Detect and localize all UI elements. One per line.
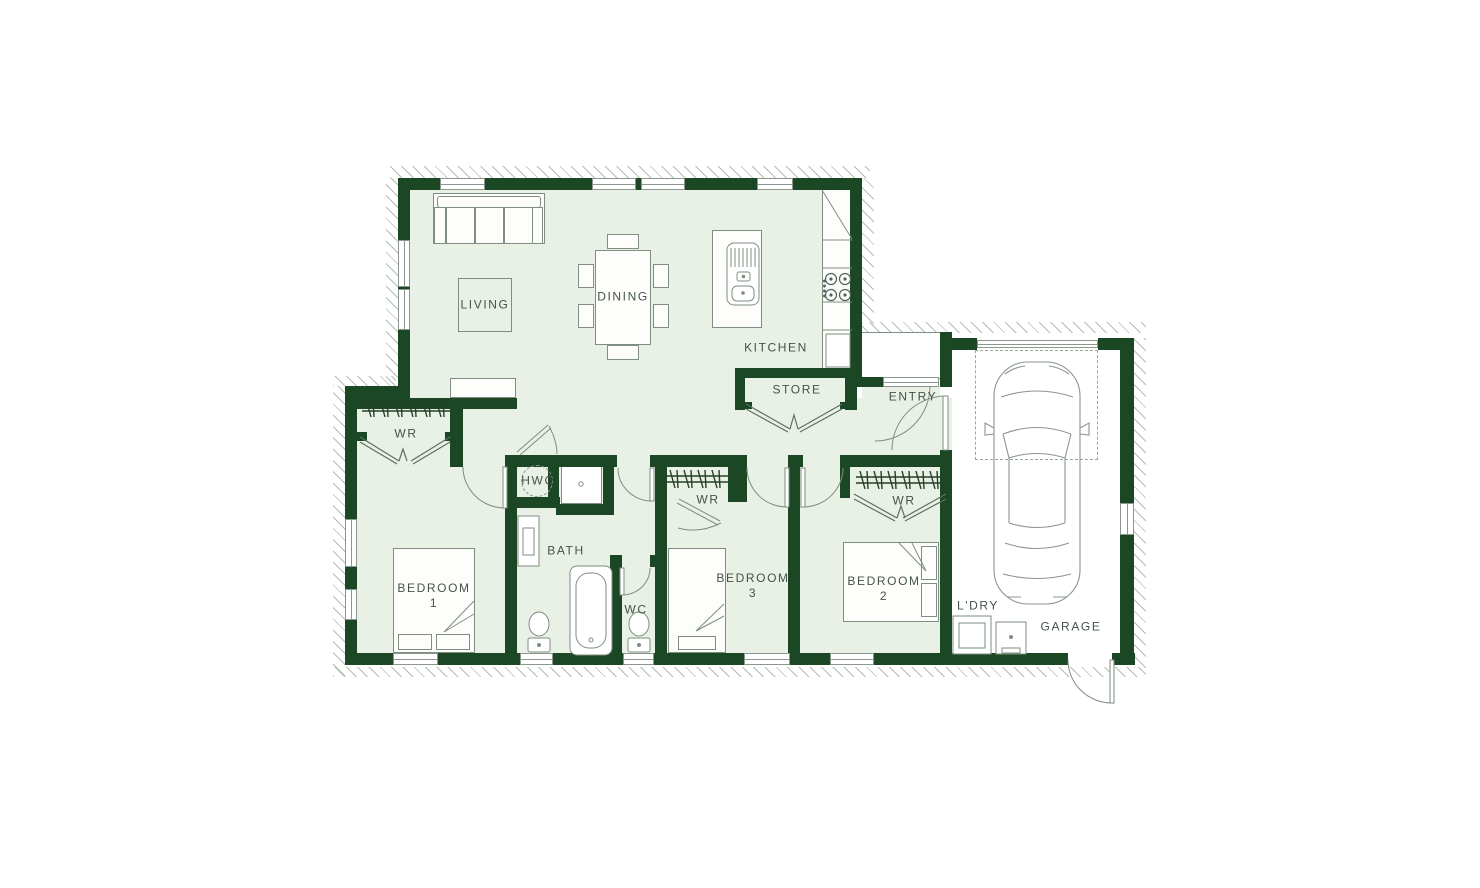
bedroom3-name: BEDROOM xyxy=(716,571,789,586)
exterior-hatch xyxy=(1134,338,1146,668)
wall-segment xyxy=(345,653,1068,665)
wall-segment xyxy=(1120,535,1134,665)
shower-tray xyxy=(561,466,602,504)
dining-chair xyxy=(607,345,639,360)
window xyxy=(641,178,685,190)
room-label-bedroom3: BEDROOM 3 xyxy=(716,571,789,601)
window xyxy=(345,589,357,620)
wall-segment xyxy=(357,432,367,441)
window xyxy=(398,240,410,287)
washing-machine xyxy=(996,622,1026,654)
wall-segment xyxy=(655,455,667,665)
wall-segment xyxy=(735,368,862,378)
wall-segment xyxy=(850,178,862,378)
bedroom2-name: BEDROOM xyxy=(847,574,920,589)
room-label-store: STORE xyxy=(772,383,821,398)
exterior-hatch xyxy=(386,178,398,400)
wall-segment xyxy=(940,450,952,665)
kitchen-counter xyxy=(822,188,852,370)
wall-segment xyxy=(505,467,517,653)
room-label-living: LIVING xyxy=(461,298,510,313)
room-label-wr2: WR xyxy=(892,494,915,509)
laundry-tub xyxy=(953,616,991,654)
room-label-wr1: WR xyxy=(394,427,417,442)
room-label-entry: ENTRY xyxy=(889,390,937,405)
room-label-garage: GARAGE xyxy=(1041,620,1102,635)
floor-plan: LIVING DINING KITCHEN STORE ENTRY WR HWC… xyxy=(0,0,1480,888)
window xyxy=(592,178,636,190)
porch xyxy=(860,332,942,379)
exterior-hatch xyxy=(333,386,345,676)
sofa-seat-cushion xyxy=(475,207,504,244)
pillow xyxy=(678,636,716,650)
bedroom1-number: 1 xyxy=(397,596,470,611)
exterior-hatch xyxy=(862,178,874,324)
window xyxy=(520,653,553,665)
window xyxy=(440,178,485,190)
garage-door-projection xyxy=(975,350,1098,460)
dining-chair xyxy=(578,304,594,328)
room-label-dining: DINING xyxy=(597,290,649,305)
dining-chair xyxy=(578,264,594,288)
pillow xyxy=(398,634,432,650)
wall-segment xyxy=(744,402,752,409)
window xyxy=(744,653,790,665)
pillow xyxy=(436,634,470,650)
room-label-kitchen: KITCHEN xyxy=(744,341,808,356)
room-label-bedroom1: BEDROOM 1 xyxy=(397,581,470,611)
sofa-seat-cushion xyxy=(504,207,533,244)
wall-segment xyxy=(445,432,455,441)
wall-segment xyxy=(840,402,848,409)
dining-chair xyxy=(607,234,639,249)
pillow xyxy=(921,583,937,617)
wall-segment xyxy=(610,567,622,665)
dining-chair xyxy=(653,304,669,328)
wall-segment xyxy=(728,455,747,502)
exterior-hatch xyxy=(333,376,396,386)
window xyxy=(345,519,357,567)
sofa-arm xyxy=(434,207,446,244)
front-door-threshold xyxy=(883,377,939,387)
pillow xyxy=(921,546,937,580)
wall-segment xyxy=(850,377,883,387)
wall-segment xyxy=(398,178,410,398)
exterior-hatch xyxy=(333,667,1146,677)
room-label-wc: WC xyxy=(624,603,647,618)
room-label-bath: BATH xyxy=(547,544,585,559)
window xyxy=(830,653,874,665)
wall-segment xyxy=(840,455,952,467)
wall-segment xyxy=(840,462,850,498)
bedroom3-number: 3 xyxy=(716,586,789,601)
wall-segment xyxy=(948,338,977,350)
exterior-hatch xyxy=(390,166,870,178)
wall-segment xyxy=(345,398,517,409)
room-label-laundry: L'DRY xyxy=(957,599,999,614)
bedroom2-number: 2 xyxy=(847,589,920,604)
window xyxy=(757,178,793,190)
garage-door xyxy=(977,340,1098,348)
wall-segment xyxy=(1120,338,1134,503)
wall-segment xyxy=(788,455,800,665)
room-label-wr3: WR xyxy=(696,493,719,508)
wall-segment xyxy=(610,555,622,567)
window xyxy=(623,653,654,665)
kitchen-island xyxy=(712,230,762,328)
window xyxy=(1120,503,1134,535)
room-label-bedroom2: BEDROOM 2 xyxy=(847,574,920,604)
wall-segment xyxy=(556,504,614,515)
room-label-hwc: HWC xyxy=(521,474,554,489)
window xyxy=(393,653,438,665)
dining-chair xyxy=(653,264,669,288)
sideboard xyxy=(450,378,516,398)
bedroom1-name: BEDROOM xyxy=(397,581,470,596)
sofa-seat-cushion xyxy=(446,207,475,244)
window xyxy=(398,289,410,330)
wall-segment xyxy=(505,455,617,467)
